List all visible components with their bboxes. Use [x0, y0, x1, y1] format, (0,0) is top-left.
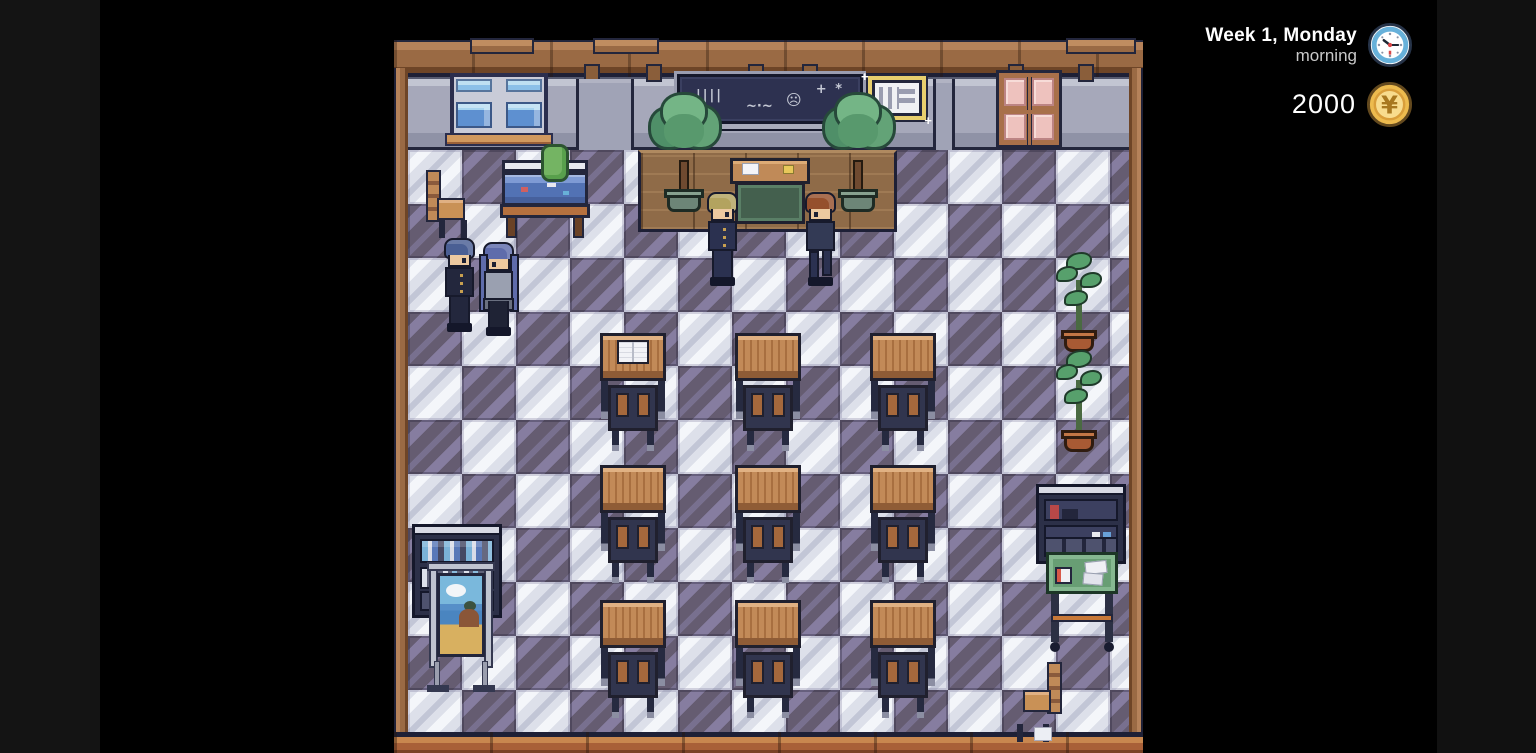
floor-tile: [678, 690, 732, 732]
yen-symbol: ¥: [1381, 90, 1398, 119]
floor-tile: [678, 636, 732, 690]
time-display: Week 1, Monday morning: [1205, 22, 1413, 68]
floor-tile: [516, 690, 570, 732]
student-desk-r1c1: [600, 333, 666, 451]
floor-tile: [516, 474, 570, 528]
floor-tile: [462, 474, 516, 528]
floor-tile: [678, 420, 732, 474]
floor-tile: [1056, 690, 1110, 732]
trim-plank: [593, 38, 659, 54]
floor-tile: [894, 258, 948, 312]
floor-tile: [1002, 312, 1056, 366]
student-blue-hair[interactable]: [440, 238, 480, 334]
floor-tile: [570, 258, 624, 312]
student-purple-hair-girl[interactable]: [479, 242, 519, 338]
floor-tile: [948, 312, 1002, 366]
floor-tile: [1110, 690, 1129, 732]
supply-cart: [1046, 552, 1118, 654]
floor-tile: [948, 150, 1002, 204]
chair-northwest: [424, 170, 468, 238]
game-stage: ||||~·~☹+ *++ Week 1, Monday morning: [0, 0, 1536, 753]
room: ||||~·~☹+ *++: [394, 40, 1143, 753]
floor-tile: [1110, 312, 1129, 366]
floor-tile: [948, 366, 1002, 420]
money-display: 2000 ¥: [1292, 81, 1413, 128]
floor-tile: [516, 420, 570, 474]
floor-tile: [408, 690, 462, 732]
floor-tile: [1002, 420, 1056, 474]
student-blonde[interactable]: [703, 192, 743, 288]
floor-tile: [948, 636, 1002, 690]
floor-tile: [894, 204, 948, 258]
floor-tile: [462, 420, 516, 474]
floor-tile: [948, 420, 1002, 474]
date-label: Week 1, Monday: [1205, 25, 1357, 47]
floor-tile: [1002, 204, 1056, 258]
floor-tile: [678, 528, 732, 582]
classroom-door[interactable]: [996, 70, 1062, 148]
floor-tile: [408, 420, 462, 474]
floor-tile: [516, 636, 570, 690]
floor-tile: [516, 582, 570, 636]
window: [450, 73, 548, 137]
trim-post: [1078, 64, 1094, 82]
yen-coin-icon: ¥: [1366, 81, 1413, 128]
potted-plant-lower: [1056, 350, 1102, 452]
wall-pillar-right: [933, 79, 955, 150]
floor-tile: [1110, 150, 1129, 204]
floor-tile: [678, 582, 732, 636]
time-of-day-label: morning: [1205, 46, 1357, 66]
left-letterbox-strip: [0, 0, 100, 753]
floor-tile: [948, 474, 1002, 528]
chair-southeast: [1016, 662, 1064, 742]
floor-tile: [1056, 204, 1110, 258]
floor-tile: [516, 312, 570, 366]
trim-plank: [1066, 38, 1136, 54]
cactus-pot: [541, 144, 569, 182]
floor-tile: [1002, 150, 1056, 204]
floor-tile: [1110, 366, 1129, 420]
floor-tile: [678, 312, 732, 366]
student-desk-r2c1: [600, 465, 666, 583]
floor-tile: [462, 366, 516, 420]
floor-tile: [516, 258, 570, 312]
wall-pillar-left: [576, 79, 634, 150]
floor-tile: [678, 366, 732, 420]
wall-trim-right: [1129, 68, 1143, 753]
student-desk-r3c1: [600, 600, 666, 718]
floor-tile: [1110, 420, 1129, 474]
clock-icon: [1367, 22, 1413, 68]
floor-tile: [1002, 258, 1056, 312]
potted-plant-upper: [1056, 252, 1102, 352]
poster-easel: [427, 562, 495, 692]
floor-tile: [624, 258, 678, 312]
right-letterbox-strip: [1437, 0, 1536, 753]
floor-tile: [408, 474, 462, 528]
floor-tile: [840, 258, 894, 312]
wall-trim-left: [394, 68, 408, 753]
student-desk-r3c3: [870, 600, 936, 718]
floor-tile: [948, 258, 1002, 312]
floor-tile: [1056, 150, 1110, 204]
floor-tile: [948, 204, 1002, 258]
floor-tile: [516, 528, 570, 582]
floor-tile: [948, 528, 1002, 582]
floor-tile: [948, 582, 1002, 636]
money-amount: 2000: [1292, 89, 1356, 120]
student-desk-r2c3: [870, 465, 936, 583]
floor-tile: [516, 366, 570, 420]
floor-tile: [1110, 204, 1129, 258]
floor-tile: [462, 690, 516, 732]
student-desk-r2c2: [735, 465, 801, 583]
floor-tile: [894, 150, 948, 204]
trim-post: [646, 64, 662, 82]
student-desk-r3c2: [735, 600, 801, 718]
student-desk-r1c2: [735, 333, 801, 451]
floor-tile: [1002, 366, 1056, 420]
student-desk-r1c3: [870, 333, 936, 451]
floor-tile: [1110, 258, 1129, 312]
student-auburn[interactable]: [801, 192, 841, 288]
floor-tile: [948, 690, 1002, 732]
trim-plank: [470, 38, 534, 54]
floor-tile: [408, 366, 462, 420]
floor-tile: [678, 474, 732, 528]
